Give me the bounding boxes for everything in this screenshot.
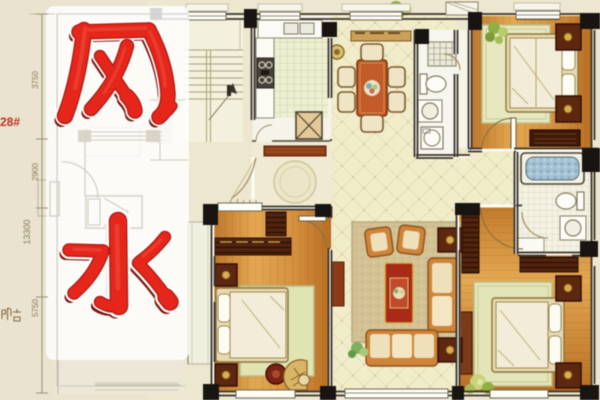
svg-text:28#: 28#: [0, 115, 20, 129]
svg-text:13300: 13300: [22, 219, 32, 244]
svg-text:2900: 2900: [31, 163, 40, 181]
svg-text:3750: 3750: [31, 71, 40, 89]
svg-text:5750: 5750: [31, 299, 40, 317]
